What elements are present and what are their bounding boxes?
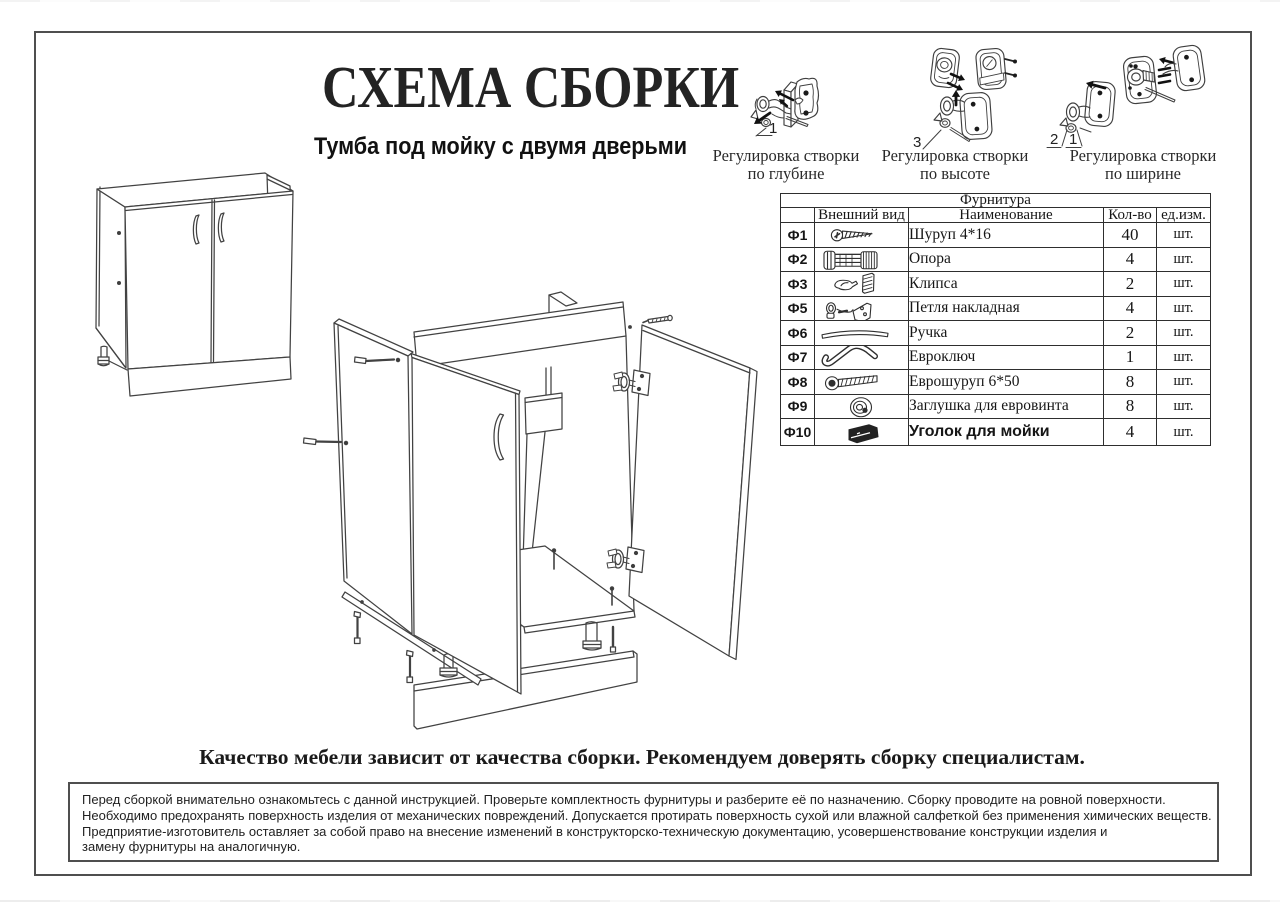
svg-text:1: 1 (769, 120, 777, 137)
svg-text:3: 3 (913, 134, 921, 151)
svg-text:1: 1 (1069, 131, 1077, 148)
svg-text:2: 2 (1050, 131, 1058, 148)
